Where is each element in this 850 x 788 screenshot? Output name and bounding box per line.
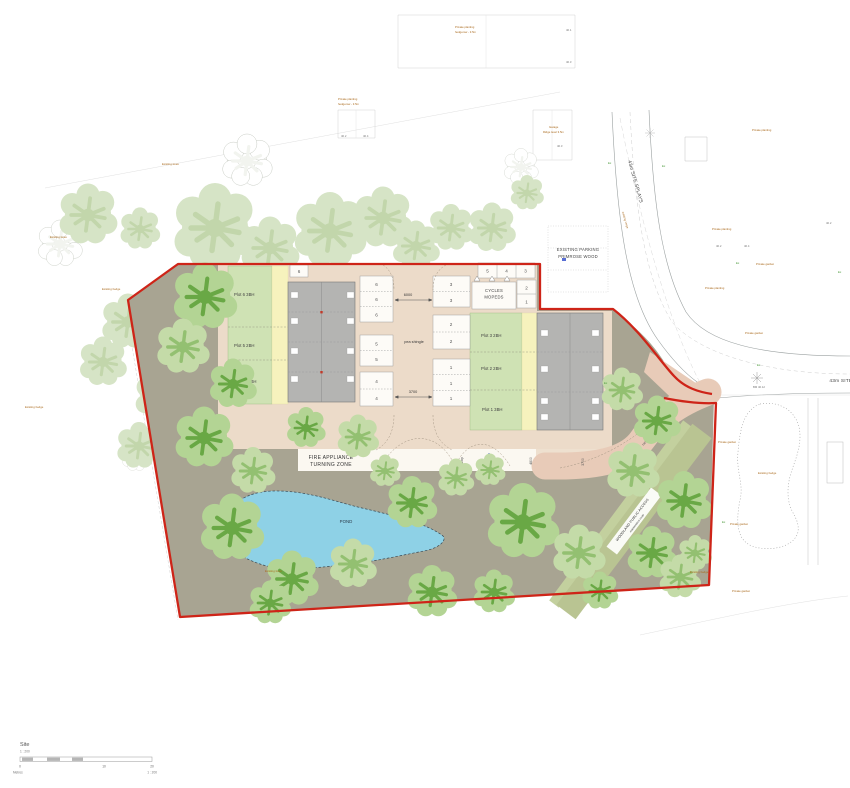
east-features bbox=[700, 395, 850, 565]
bay-number: 1 bbox=[450, 365, 453, 370]
bay-number: 3 bbox=[450, 298, 453, 303]
sheet-scale: 1 : 200 bbox=[20, 750, 30, 754]
note: Private planting bbox=[712, 227, 732, 231]
spot-level: 40.4 bbox=[744, 244, 750, 248]
bay-number: 6 bbox=[375, 313, 378, 318]
bay-number: 4 bbox=[375, 379, 378, 384]
fire-zone-label: TURNING ZONE bbox=[310, 462, 352, 468]
cycle-store: CYCLES MOPEDS bbox=[472, 276, 516, 309]
scale-tick: 10 bbox=[102, 765, 106, 769]
garden-strip-right bbox=[522, 313, 537, 430]
spot-level: 40.2 bbox=[341, 134, 347, 138]
bay-number: 1 bbox=[525, 300, 528, 305]
tree-tag: Ex bbox=[722, 520, 726, 524]
bay-number: 4 bbox=[375, 396, 378, 401]
bay-number: 5 bbox=[375, 342, 378, 347]
note: Ridge level 3.5m bbox=[543, 130, 565, 134]
pea-shingle-label: pea shingle bbox=[404, 340, 423, 344]
plot-label: Plot 5 2BH bbox=[234, 343, 255, 348]
bay-number: 6 bbox=[298, 269, 301, 274]
note: Existing hedge bbox=[690, 570, 709, 574]
bay-number: 4 bbox=[505, 269, 508, 274]
verge-note: existing verge bbox=[621, 211, 630, 229]
note: Existing hedge bbox=[102, 287, 121, 291]
building-right bbox=[537, 313, 603, 430]
sheet-title: Site bbox=[20, 742, 29, 748]
bay-number: 5 bbox=[486, 269, 489, 274]
bay-number: 6 bbox=[375, 297, 378, 302]
spot-level: 40.3 bbox=[566, 60, 572, 64]
road-centerline bbox=[630, 112, 850, 374]
note: Private planting bbox=[705, 286, 725, 290]
bare-tree-icon bbox=[645, 128, 655, 138]
mopeds-label: MOPEDS bbox=[484, 295, 503, 300]
dim-6000: 6000 bbox=[404, 293, 412, 297]
tree bbox=[60, 184, 118, 244]
scale-units: Metres bbox=[13, 771, 23, 775]
existing-parking-label: EXISTING PARKING bbox=[557, 247, 599, 252]
scale-ratio-right: 1 : 200 bbox=[147, 771, 157, 775]
note: hedgerow - 3.5m bbox=[455, 30, 477, 34]
tree-tag: Ex bbox=[736, 261, 740, 265]
note: Existing hedge bbox=[25, 405, 44, 409]
bay-number: 1 bbox=[450, 381, 453, 386]
scale-bar-block: Site 1 : 200 0 10 20 Metres 1 : 200 bbox=[13, 742, 157, 775]
plot-label: Plot 6 3BH bbox=[234, 292, 255, 297]
cycles-label: CYCLES bbox=[485, 288, 503, 293]
note: Private garden bbox=[745, 331, 764, 335]
bay-number: 2 bbox=[525, 286, 528, 291]
note: Existing trees bbox=[162, 162, 179, 166]
plot-label: Plot 3 2BH bbox=[481, 333, 502, 338]
bay-number: 2 bbox=[450, 339, 453, 344]
bay-number: 5 bbox=[375, 357, 378, 362]
bay-number: 3 bbox=[524, 269, 527, 274]
note: Existing trees bbox=[265, 569, 282, 573]
dim-3700b: 3700 bbox=[581, 458, 585, 466]
bay-number: 2 bbox=[450, 322, 453, 327]
tree bbox=[223, 134, 273, 185]
note: Private garden bbox=[718, 440, 737, 444]
note: Garage bbox=[549, 125, 559, 129]
note: hedgerow - 3.5m bbox=[338, 102, 360, 106]
tree-tag: Ex bbox=[608, 161, 612, 165]
pond-label: POND bbox=[340, 519, 353, 524]
primrose-wood-label: PRIMROSE WOOD bbox=[558, 254, 598, 259]
tree bbox=[121, 207, 161, 248]
bay-number: 6 bbox=[375, 282, 378, 287]
road-outer-edge-east bbox=[718, 393, 850, 398]
bay-number: 1 bbox=[450, 396, 453, 401]
dim-4800: 4800 bbox=[529, 457, 533, 465]
garden-strip-left bbox=[272, 266, 288, 404]
note: Private garden bbox=[732, 589, 751, 593]
building-left bbox=[288, 282, 355, 402]
note: Private planting bbox=[455, 25, 475, 29]
site-plan-drawing: 6 6 6 5 5 4 4 3 3 2 2 1 1 1 5 4 3 2 bbox=[0, 0, 850, 788]
tree-tag: Ex bbox=[838, 270, 842, 274]
spot-level: 40.4 bbox=[363, 134, 369, 138]
plot-gardens-right bbox=[470, 313, 522, 430]
bay-number: 3 bbox=[450, 282, 453, 287]
spot-level: 40.2 bbox=[826, 221, 832, 225]
tree-tag: Ex bbox=[662, 164, 666, 168]
scale-tick: 0 bbox=[19, 765, 21, 769]
note: Private garden bbox=[730, 522, 749, 526]
note: Private garden bbox=[756, 262, 775, 266]
spot-level: 40.3 bbox=[557, 144, 563, 148]
plot-label: Plot 2 2BH bbox=[481, 366, 502, 371]
note: Existing trees bbox=[50, 235, 67, 239]
scale-bar bbox=[20, 757, 152, 762]
note: Private planting bbox=[752, 128, 772, 132]
road-inner-edge bbox=[649, 110, 850, 356]
spot-level: 40.2 bbox=[716, 244, 722, 248]
existing-hedge-outline bbox=[738, 403, 800, 548]
bare-tree-icon bbox=[751, 372, 763, 384]
spot-level: 40.1 bbox=[566, 28, 572, 32]
note: Existing hedge bbox=[758, 471, 777, 475]
site-splays-label: 43m SITE SPLAYS bbox=[626, 160, 644, 204]
scale-tick: 20 bbox=[150, 765, 154, 769]
plot-label: Plot 1 3BH bbox=[482, 407, 503, 412]
site-plan-svg: 6 6 6 5 5 4 4 3 3 2 2 1 1 1 5 4 3 2 bbox=[0, 0, 850, 788]
scale-bar-segments bbox=[22, 758, 83, 761]
site-splays-label-east: 43m SITE SP bbox=[829, 378, 850, 384]
tree bbox=[429, 204, 473, 250]
note: Private planting bbox=[338, 97, 358, 101]
tree bbox=[469, 203, 516, 251]
existing-parking-bays bbox=[548, 226, 608, 292]
fire-zone-label: FIRE APPLIANCE bbox=[309, 455, 354, 461]
dim-3700: 3700 bbox=[409, 390, 417, 394]
spot-level: BM 40.12 bbox=[753, 385, 765, 389]
